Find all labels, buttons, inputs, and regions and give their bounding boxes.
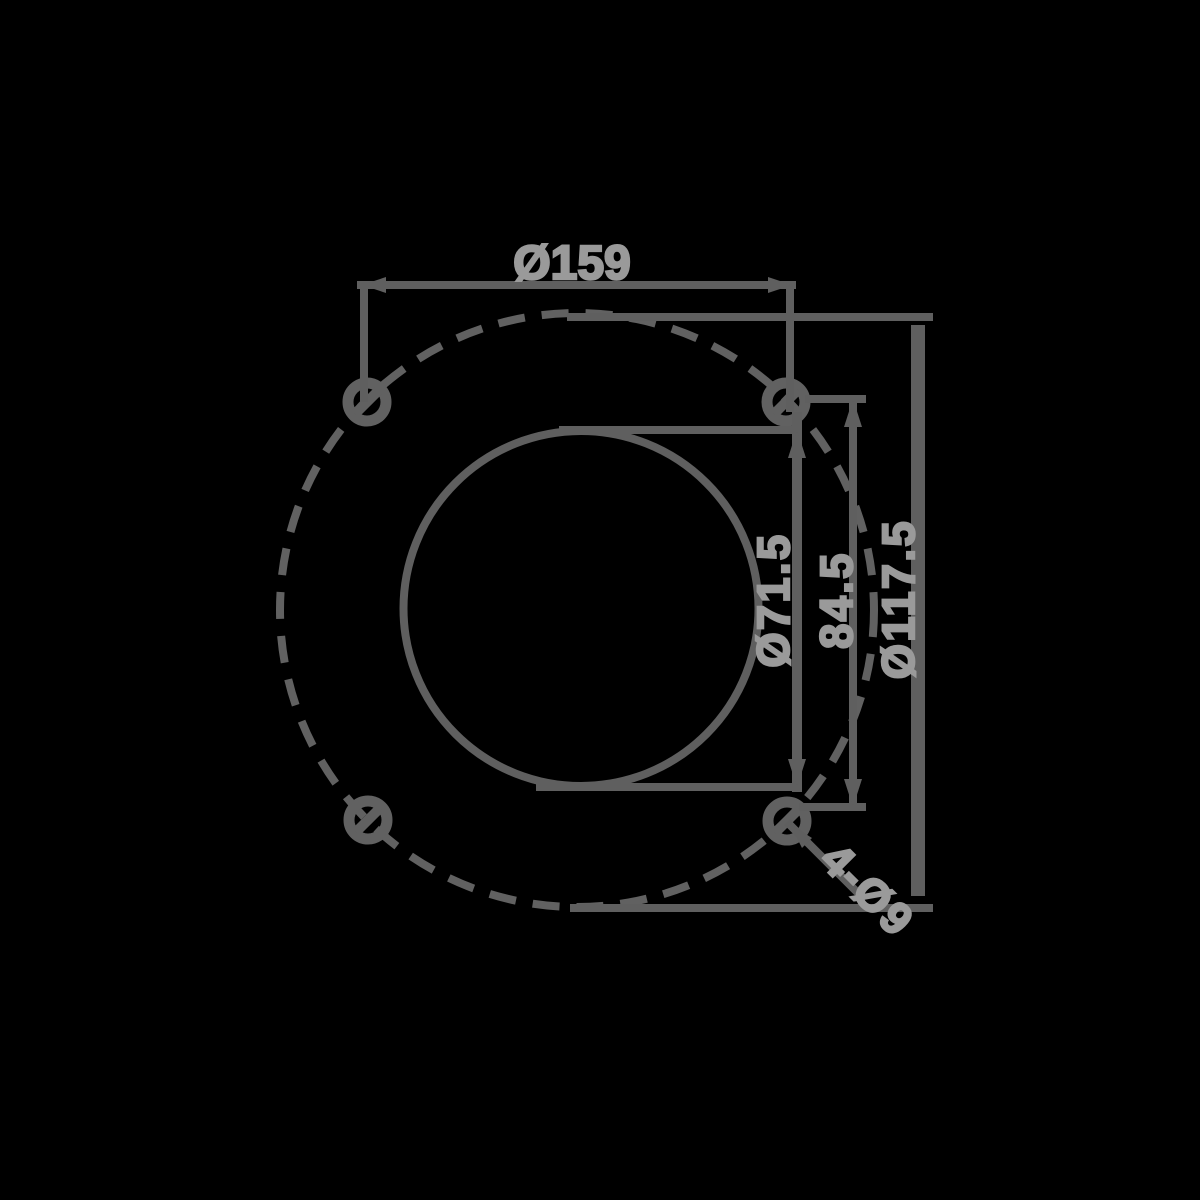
svg-text:Ø71.5: Ø71.5 bbox=[748, 532, 799, 667]
svg-text:Ø117.5: Ø117.5 bbox=[873, 519, 924, 679]
svg-text:Ø159: Ø159 bbox=[513, 237, 630, 290]
svg-text:84.5: 84.5 bbox=[811, 551, 862, 649]
